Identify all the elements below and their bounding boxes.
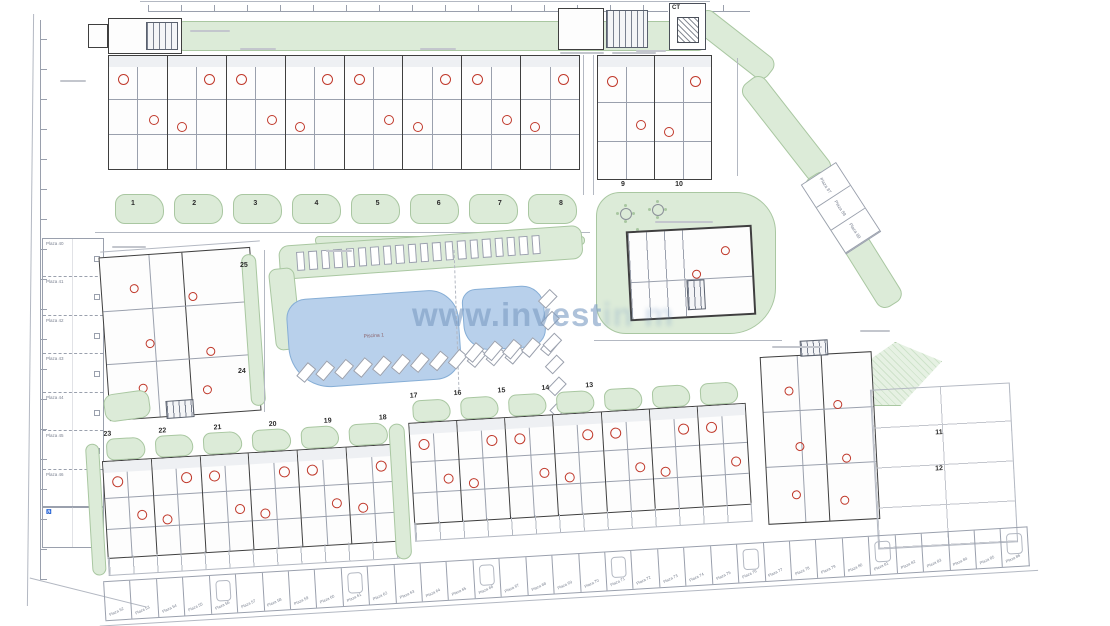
garden-strip-north-a bbox=[110, 194, 582, 224]
unit-floorplan bbox=[602, 410, 656, 513]
terrace-block-north-a bbox=[108, 55, 580, 170]
garden-blob bbox=[508, 393, 547, 417]
unit-numbers-north-a: 12345678 bbox=[128, 200, 566, 207]
unit-floorplan bbox=[409, 421, 463, 524]
sunbed bbox=[457, 240, 467, 260]
garden-blob bbox=[604, 387, 643, 411]
site-plan-canvas: CT 12345678 910 Plaza 40Plaza 41Plaza 42… bbox=[0, 0, 1110, 626]
terrace-block-north-b bbox=[597, 55, 712, 180]
unit-floorplan bbox=[249, 450, 303, 549]
ct-label: CT bbox=[672, 5, 680, 11]
unit-floorplan bbox=[462, 56, 521, 169]
parking-space: Plaza 58 bbox=[261, 571, 290, 611]
parking-space: Plaza 81 bbox=[868, 535, 897, 575]
utility-box-west bbox=[88, 24, 108, 48]
garden-blob bbox=[115, 194, 164, 224]
parking-space: Plaza 67 bbox=[499, 557, 528, 597]
unit-number: 25 bbox=[240, 262, 248, 269]
parking-space: Plaza 85 bbox=[974, 529, 1003, 569]
sunbed bbox=[383, 245, 393, 265]
garden-blob bbox=[349, 422, 389, 446]
parking-space: Plaza 78 bbox=[789, 540, 818, 580]
annotation-text bbox=[612, 52, 656, 54]
unit-floorplan bbox=[103, 459, 157, 558]
annotation-text bbox=[112, 246, 146, 248]
parking-space: Plaza 54 bbox=[156, 578, 185, 618]
unit-number: 16 bbox=[452, 390, 462, 398]
unit-floorplan bbox=[298, 448, 352, 547]
annotation-text bbox=[60, 80, 86, 82]
door-swing-mark bbox=[188, 292, 198, 302]
door-swing-mark bbox=[129, 284, 139, 294]
unit-floorplan bbox=[201, 453, 255, 552]
unit-floorplan bbox=[521, 56, 579, 169]
central-stair-building bbox=[558, 8, 604, 50]
door-swing-mark bbox=[145, 339, 155, 349]
unit-floorplan bbox=[152, 456, 206, 555]
picnic-table-icon bbox=[652, 204, 664, 216]
unit-number: 23 bbox=[102, 430, 112, 438]
unit-floorplan bbox=[168, 56, 227, 169]
garden-blob bbox=[300, 425, 340, 449]
unit-number: 8 bbox=[556, 200, 566, 207]
unit-number: 10 bbox=[674, 181, 684, 188]
annotation-text bbox=[420, 48, 456, 50]
garden-blob bbox=[412, 398, 451, 422]
sunbed bbox=[531, 235, 541, 255]
watermark-faint-tail: in m bbox=[602, 296, 674, 333]
unit-number: 19 bbox=[323, 417, 333, 425]
sunbed bbox=[506, 237, 516, 257]
unit-number: 5 bbox=[373, 200, 383, 207]
unit-number: 3 bbox=[250, 200, 260, 207]
parking-space: Plaza 71 bbox=[604, 551, 633, 591]
unit-floorplan bbox=[553, 412, 607, 515]
parking-space: Plaza 80 bbox=[842, 537, 871, 577]
road-line bbox=[593, 55, 594, 195]
unit-number: 9 bbox=[618, 181, 628, 188]
sunbed bbox=[519, 236, 529, 256]
parking-space: Plaza 77 bbox=[763, 542, 792, 582]
unit-floorplan bbox=[505, 415, 559, 518]
unit-number: 17 bbox=[408, 392, 418, 400]
parking-space: Plaza 40 bbox=[43, 239, 103, 277]
garden-blob bbox=[699, 381, 738, 405]
unit-numbers-north-b: 910 bbox=[618, 181, 684, 188]
unit-number: 22 bbox=[157, 427, 167, 435]
garden-blob bbox=[651, 384, 690, 408]
watermark-text: www.invest bbox=[412, 296, 602, 333]
unit-floorplan bbox=[345, 56, 404, 169]
door-swing-mark bbox=[206, 347, 216, 357]
unit-number: 7 bbox=[495, 200, 505, 207]
unit-floorplan bbox=[650, 407, 704, 510]
parking-space: Plaza 75 bbox=[710, 545, 739, 585]
garden-blob bbox=[251, 428, 291, 452]
parking-space: Plaza 70 bbox=[578, 553, 607, 593]
garden-blob bbox=[154, 434, 194, 458]
unit-floorplan bbox=[655, 56, 711, 179]
parking-space: Plaza 64 bbox=[420, 562, 449, 602]
central-stairs bbox=[606, 10, 648, 48]
sunbed bbox=[494, 238, 504, 258]
garden-blob bbox=[292, 194, 341, 224]
garden-blob bbox=[410, 194, 459, 224]
unit-floorplan bbox=[698, 404, 751, 507]
unit-number: 18 bbox=[378, 414, 388, 422]
parking-space: Plaza 83 bbox=[921, 532, 950, 572]
parking-space: Plaza 53 bbox=[130, 579, 159, 619]
unit-number: 6 bbox=[434, 200, 444, 207]
sunbed bbox=[420, 243, 430, 263]
west-boundary-line bbox=[27, 14, 34, 606]
sunbed bbox=[482, 238, 492, 258]
garden-blob bbox=[351, 194, 400, 224]
parking-space: Plaza 65 bbox=[446, 560, 475, 600]
parking-space: Plaza 69 bbox=[552, 554, 581, 594]
sunbed bbox=[321, 250, 331, 270]
unit-number: 4 bbox=[311, 200, 321, 207]
annotation-text bbox=[655, 221, 713, 223]
garden-blob bbox=[203, 431, 243, 455]
annotation-text bbox=[860, 330, 890, 332]
unit-floorplan bbox=[286, 56, 345, 169]
entrance-stairs bbox=[146, 22, 178, 50]
unit-number: 13 bbox=[584, 382, 594, 390]
door-swing-mark bbox=[721, 246, 730, 255]
unit-number: 1 bbox=[128, 200, 138, 207]
parking-space: Plaza 82 bbox=[894, 534, 923, 574]
parking-space: Plaza 74 bbox=[683, 546, 712, 586]
garden-blob bbox=[106, 437, 146, 461]
dimension-line bbox=[737, 58, 738, 176]
ct-equipment-icon bbox=[677, 17, 699, 43]
garden-blob bbox=[528, 194, 577, 224]
community-stair bbox=[686, 279, 706, 310]
door-swing-mark bbox=[692, 269, 701, 278]
parking-space: Plaza 59 bbox=[288, 570, 317, 610]
road-line bbox=[583, 55, 584, 195]
sunbed bbox=[395, 244, 405, 264]
parking-space: Plaza 73 bbox=[657, 548, 686, 588]
parking-space: Plaza 55 bbox=[182, 576, 211, 616]
garden-blob bbox=[233, 194, 282, 224]
parking-space: Plaza 62 bbox=[367, 565, 396, 605]
sunbed bbox=[370, 246, 380, 266]
sunbed bbox=[469, 239, 479, 259]
parking-space: Plaza 52 bbox=[103, 581, 132, 621]
annotation-text bbox=[240, 48, 276, 50]
parking-space: Plaza 42 bbox=[43, 316, 103, 354]
annotation-text bbox=[190, 30, 230, 32]
parking-space: Plaza 68 bbox=[525, 556, 554, 596]
garden-blob bbox=[556, 390, 595, 414]
unit-number: 14 bbox=[540, 384, 550, 392]
annotation-text bbox=[326, 250, 352, 252]
picnic-table-icon bbox=[620, 208, 632, 220]
parking-space: Plaza 84 bbox=[947, 531, 976, 571]
parking-space: Plaza 56 bbox=[209, 574, 238, 614]
parking-space: Plaza 76 bbox=[736, 543, 765, 583]
garden-blob bbox=[460, 396, 499, 420]
parking-space: Plaza 60 bbox=[314, 568, 343, 608]
parking-space: Plaza 63 bbox=[393, 563, 422, 603]
parking-space: Plaza 61 bbox=[341, 567, 370, 607]
unit-number: 15 bbox=[496, 387, 506, 395]
unit-floorplan bbox=[227, 56, 286, 169]
parking-space: Plaza 41 bbox=[43, 277, 103, 315]
northeast-green-curve-2 bbox=[738, 72, 835, 185]
garden-blob bbox=[174, 194, 223, 224]
sunbed bbox=[407, 244, 417, 264]
parking-space: Plaza 57 bbox=[235, 573, 264, 613]
unit-number: 21 bbox=[212, 424, 222, 432]
parking-space: Plaza 66 bbox=[472, 559, 501, 599]
watermark: www.investin m bbox=[412, 296, 674, 334]
north-boundary-line bbox=[140, 1, 710, 2]
unit-floorplan bbox=[109, 56, 168, 169]
parking-space: Plaza 79 bbox=[815, 538, 844, 578]
unit-floorplan bbox=[598, 56, 655, 179]
parking-space: Plaza 72 bbox=[631, 549, 660, 589]
pool-name: Piscina 1 bbox=[363, 332, 384, 339]
sunbed bbox=[296, 251, 306, 271]
garden-blob bbox=[469, 194, 518, 224]
annotation-text bbox=[636, 50, 666, 52]
unit-number: 20 bbox=[267, 421, 277, 429]
annotation-text bbox=[560, 52, 604, 54]
unit-floorplan bbox=[403, 56, 462, 169]
sunbed bbox=[308, 251, 318, 271]
sunbed bbox=[432, 242, 442, 262]
ct-transformer-box: CT bbox=[669, 3, 706, 50]
parking-space: Plaza 86 bbox=[1000, 527, 1029, 567]
unit-number: 2 bbox=[189, 200, 199, 207]
sunbed bbox=[358, 247, 368, 267]
unit-floorplan bbox=[457, 418, 511, 521]
